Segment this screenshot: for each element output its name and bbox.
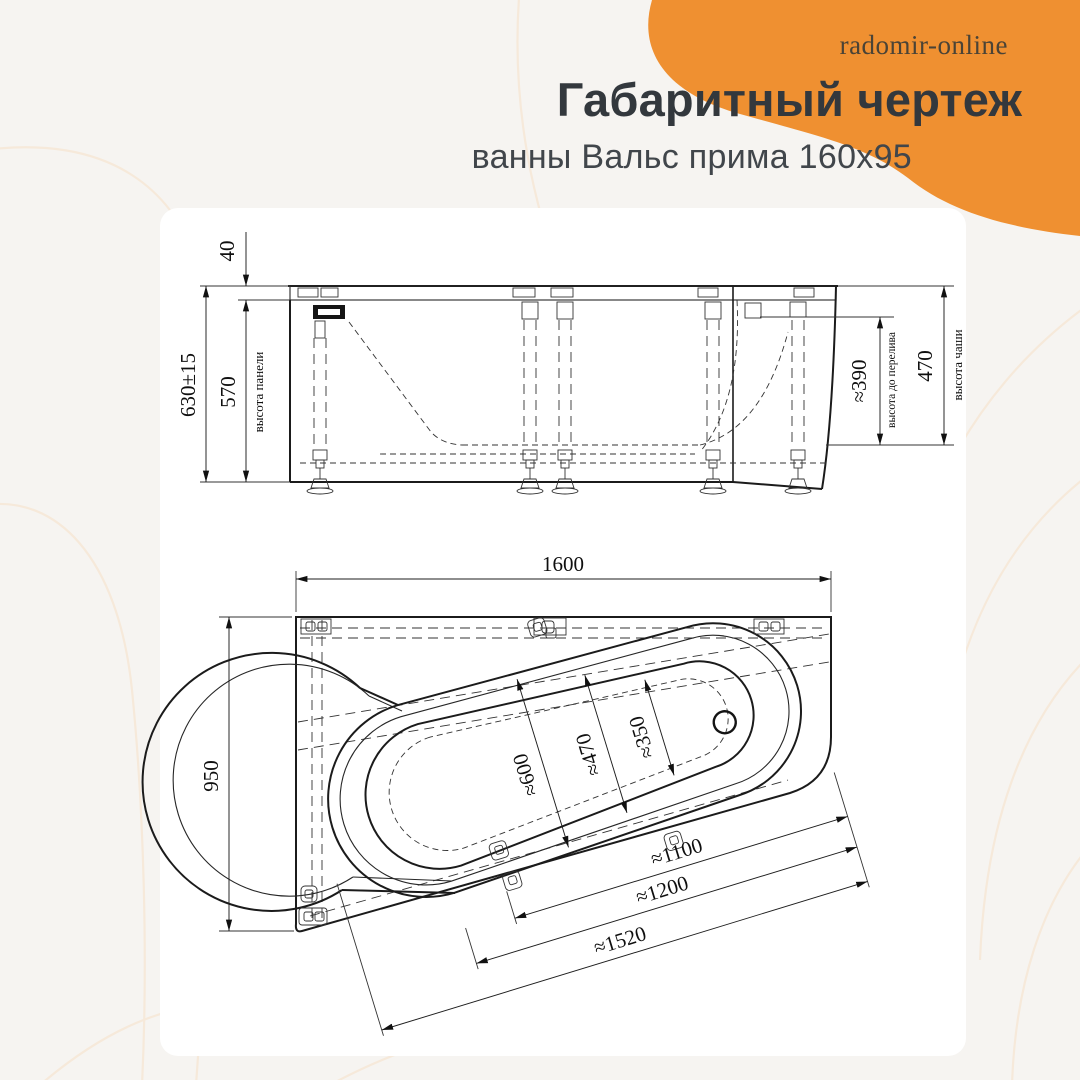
dim-width: 950 [199,760,223,792]
page-subtitle: ванны Вальс прима 160х95 [472,138,912,177]
dim-rim-offset: 40 [215,241,239,262]
dim-bowl-height: 470 [913,350,937,382]
dim-overflow-caption: высота до перелива [886,332,898,428]
dim-overflow-height: ≈390 [847,359,871,402]
dim-panel-height: 570 [216,376,240,408]
page-title: Габаритный чертеж [557,72,1022,127]
dim-panel-height-caption: высота панели [251,352,266,433]
dim-total-height: 630±15 [176,353,200,417]
drawing-panel [160,208,966,1056]
dim-bowl-height-caption: высота чаши [950,329,965,400]
dim-length: 1600 [542,552,584,576]
brand-name: radomir-online [840,30,1008,61]
poster: 630±15 570 высота панели 40 ≈390 высота … [0,0,1080,1080]
